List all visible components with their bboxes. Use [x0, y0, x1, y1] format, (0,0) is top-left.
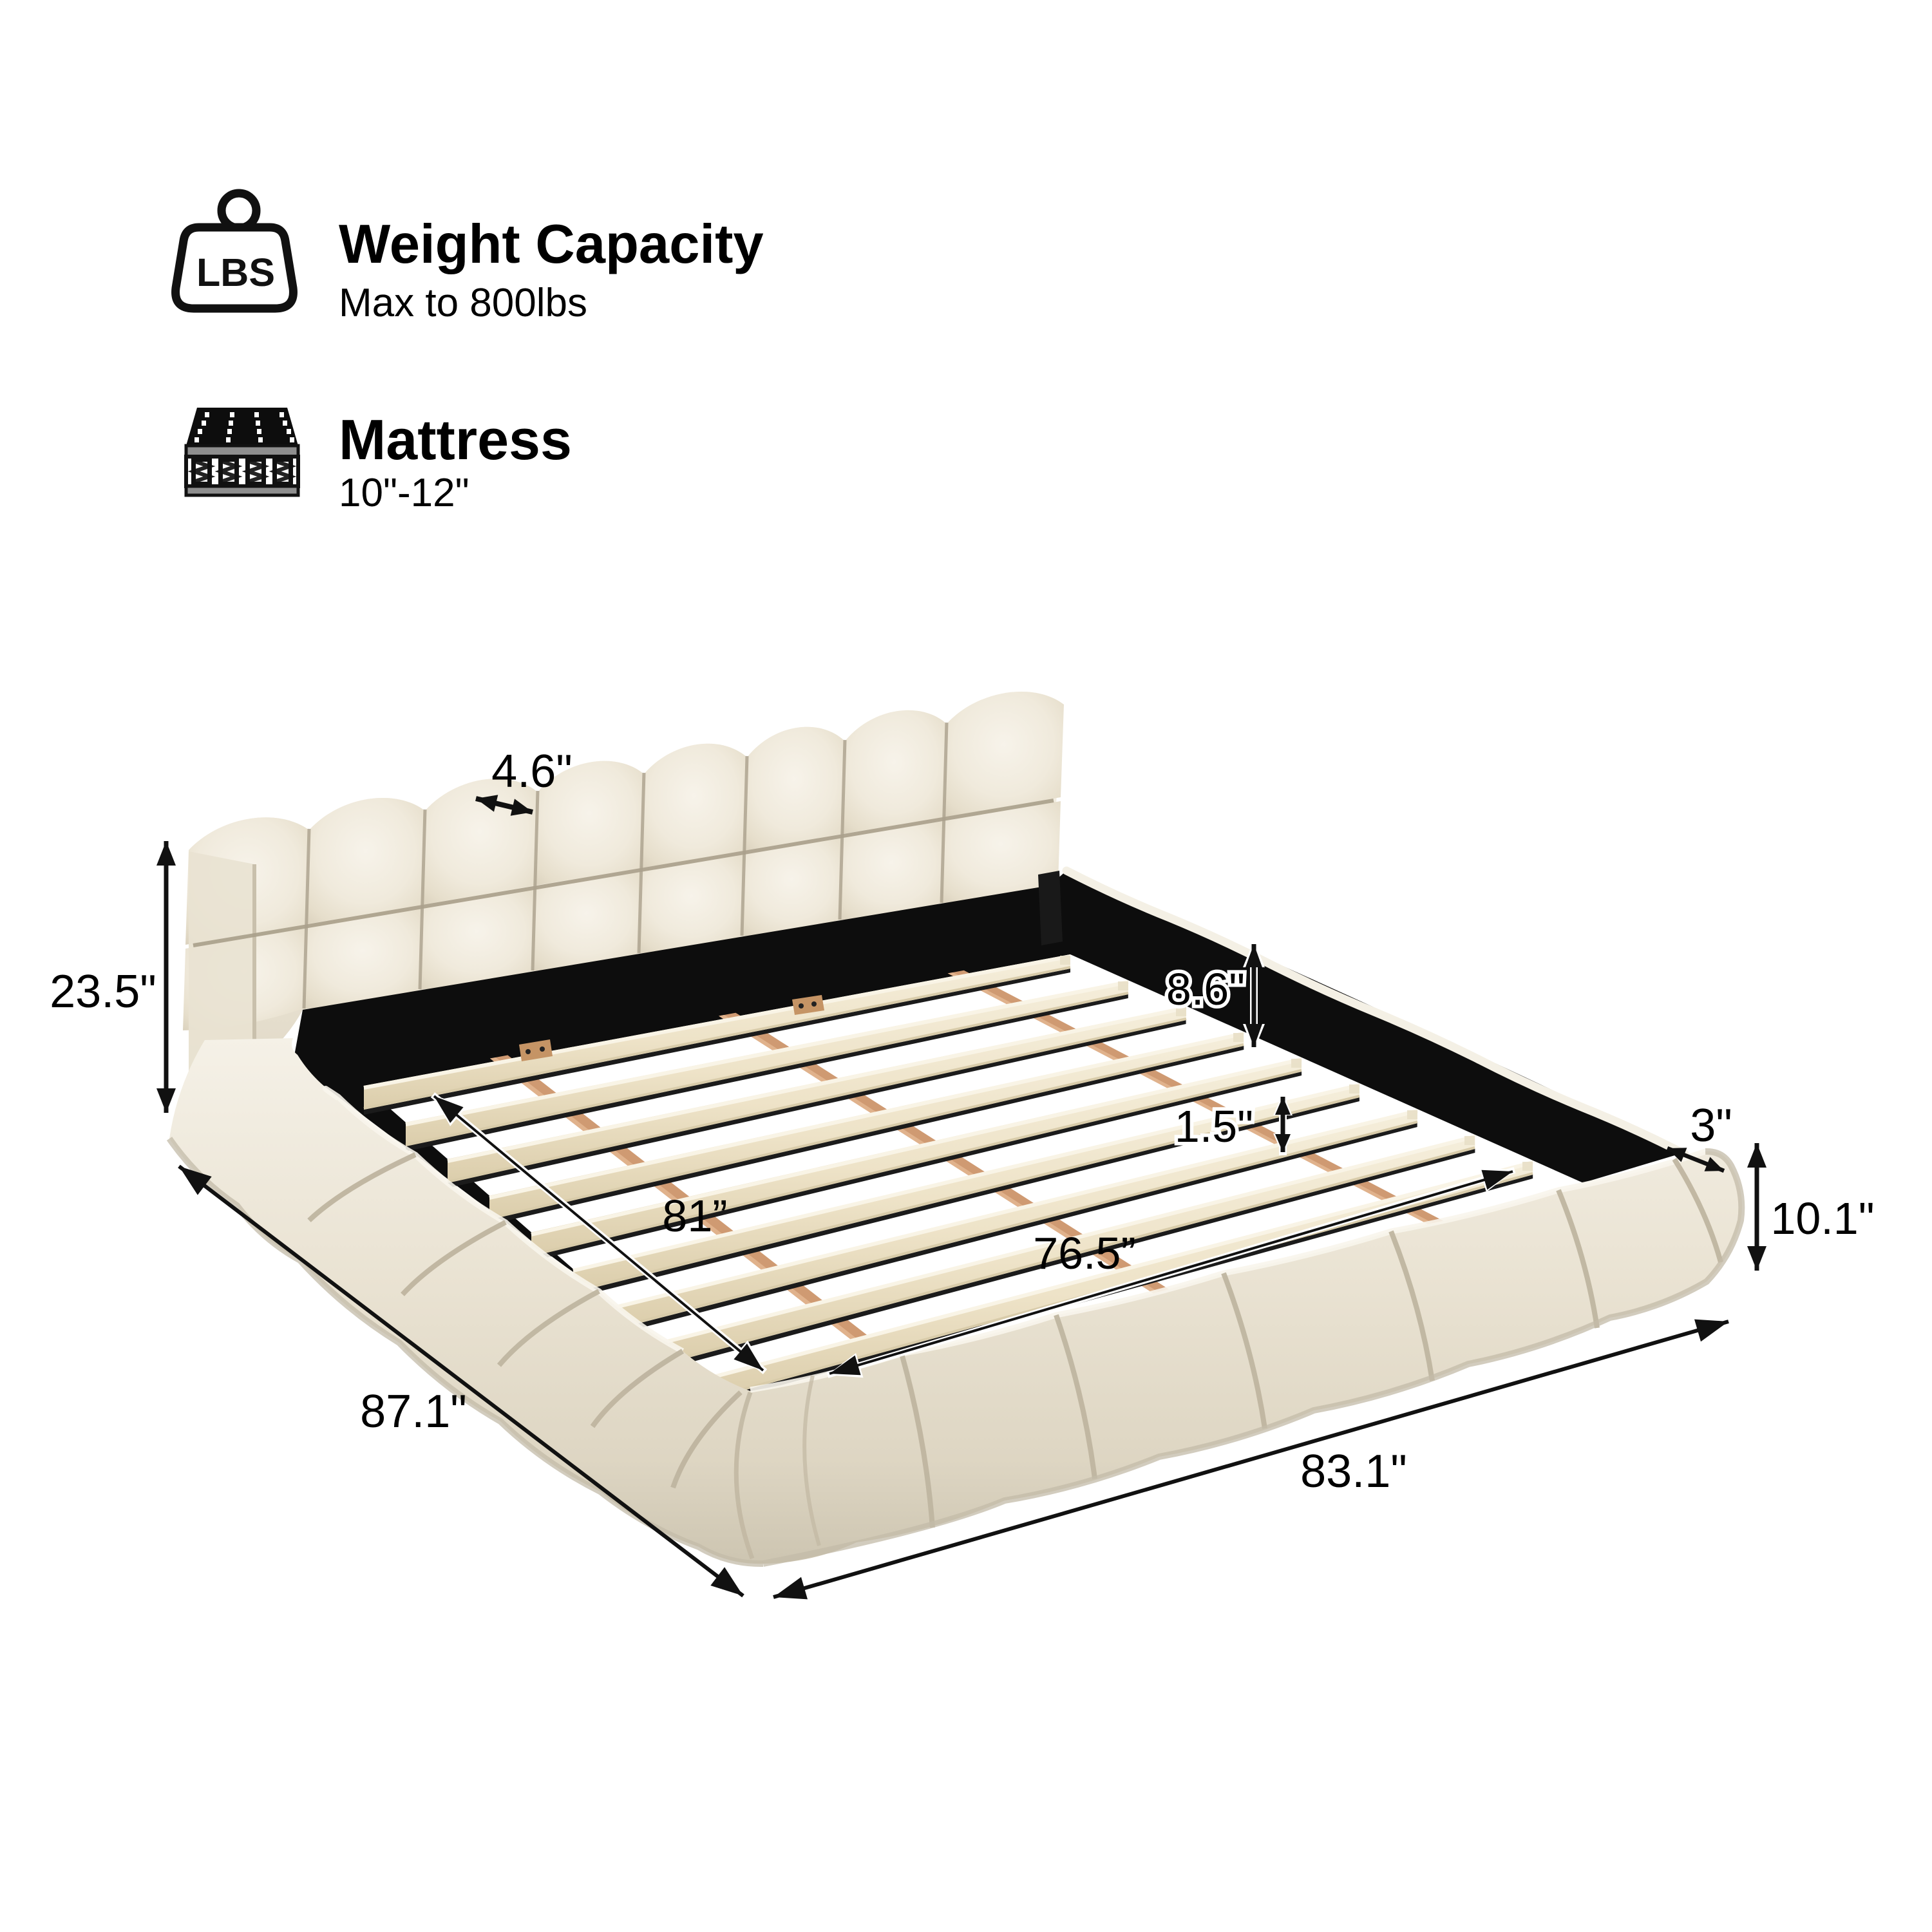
svg-text:76.5”: 76.5”: [1033, 1228, 1136, 1278]
svg-text:10.1": 10.1": [1770, 1193, 1874, 1244]
svg-text:87.1": 87.1": [360, 1386, 467, 1437]
svg-text:83.1": 83.1": [1300, 1446, 1407, 1497]
svg-text:4.6": 4.6": [491, 746, 573, 797]
svg-text:Weight Capacity: Weight Capacity: [339, 214, 764, 275]
svg-text:Mattress: Mattress: [339, 408, 572, 471]
svg-text:10"-12": 10"-12": [339, 471, 469, 515]
svg-text:Max to 800lbs: Max to 800lbs: [339, 281, 587, 325]
svg-text:1.5": 1.5": [1175, 1101, 1253, 1151]
svg-text:3": 3": [1690, 1100, 1732, 1151]
svg-text:81”: 81”: [662, 1191, 727, 1241]
svg-text:LBS: LBS: [196, 251, 275, 294]
svg-text:8.6": 8.6": [1166, 964, 1245, 1014]
svg-text:23.5": 23.5": [50, 966, 156, 1018]
